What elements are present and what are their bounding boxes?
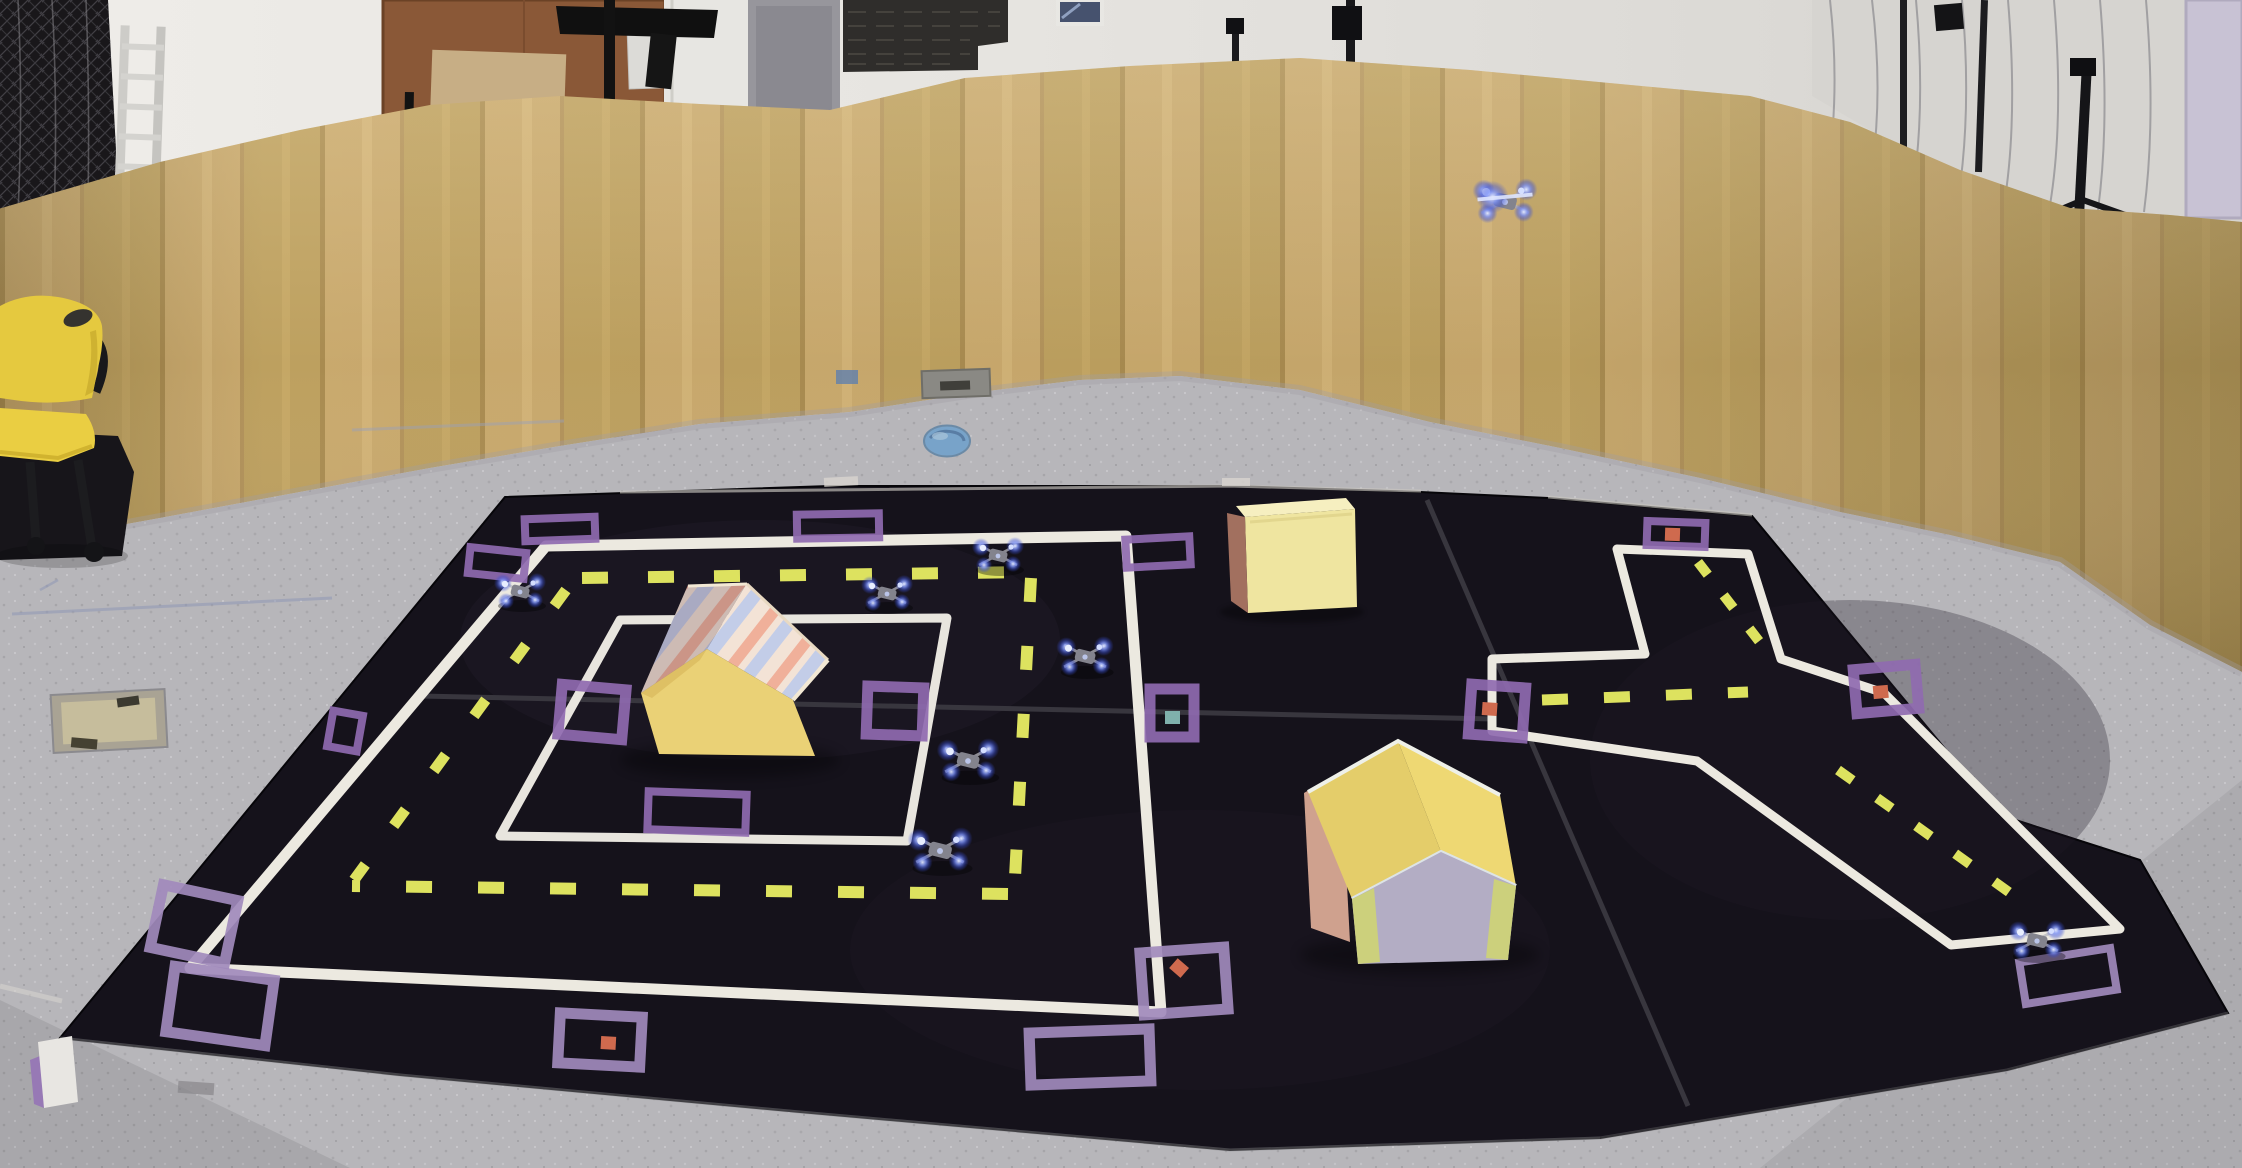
drone-led	[2017, 929, 2024, 936]
floor-outlet-panel	[51, 689, 168, 753]
drone-led	[1065, 645, 1072, 652]
drone-led	[530, 580, 535, 585]
floor-blue-circle-marker	[924, 426, 970, 457]
drone-led	[980, 747, 986, 753]
floor-panel	[922, 369, 991, 398]
marker-dot	[601, 1036, 617, 1050]
obstacle-box	[1227, 498, 1357, 613]
drone-led	[1518, 188, 1525, 195]
drone-led	[1008, 544, 1013, 549]
lavender-panel	[2186, 0, 2242, 218]
arena-svg	[0, 0, 2242, 1168]
drone-led	[502, 581, 508, 587]
marker-dot	[1482, 702, 1498, 716]
drone-led	[917, 837, 925, 845]
blue-tape-on-wall	[836, 370, 858, 384]
obstacle-box-front	[1245, 509, 1357, 613]
drone-led	[1096, 644, 1102, 650]
drone-led	[869, 583, 875, 589]
drone-led	[946, 748, 954, 756]
marker-dot	[1873, 685, 1889, 699]
marker-dot	[1165, 711, 1180, 724]
marker-dot	[1665, 528, 1680, 542]
drone-led	[953, 837, 960, 844]
drone-led	[2048, 928, 2054, 934]
drone-led	[980, 545, 986, 551]
drone-led	[897, 582, 902, 587]
lab-photo-scene	[0, 0, 2242, 1168]
picture-frame-1	[1056, 0, 1104, 26]
